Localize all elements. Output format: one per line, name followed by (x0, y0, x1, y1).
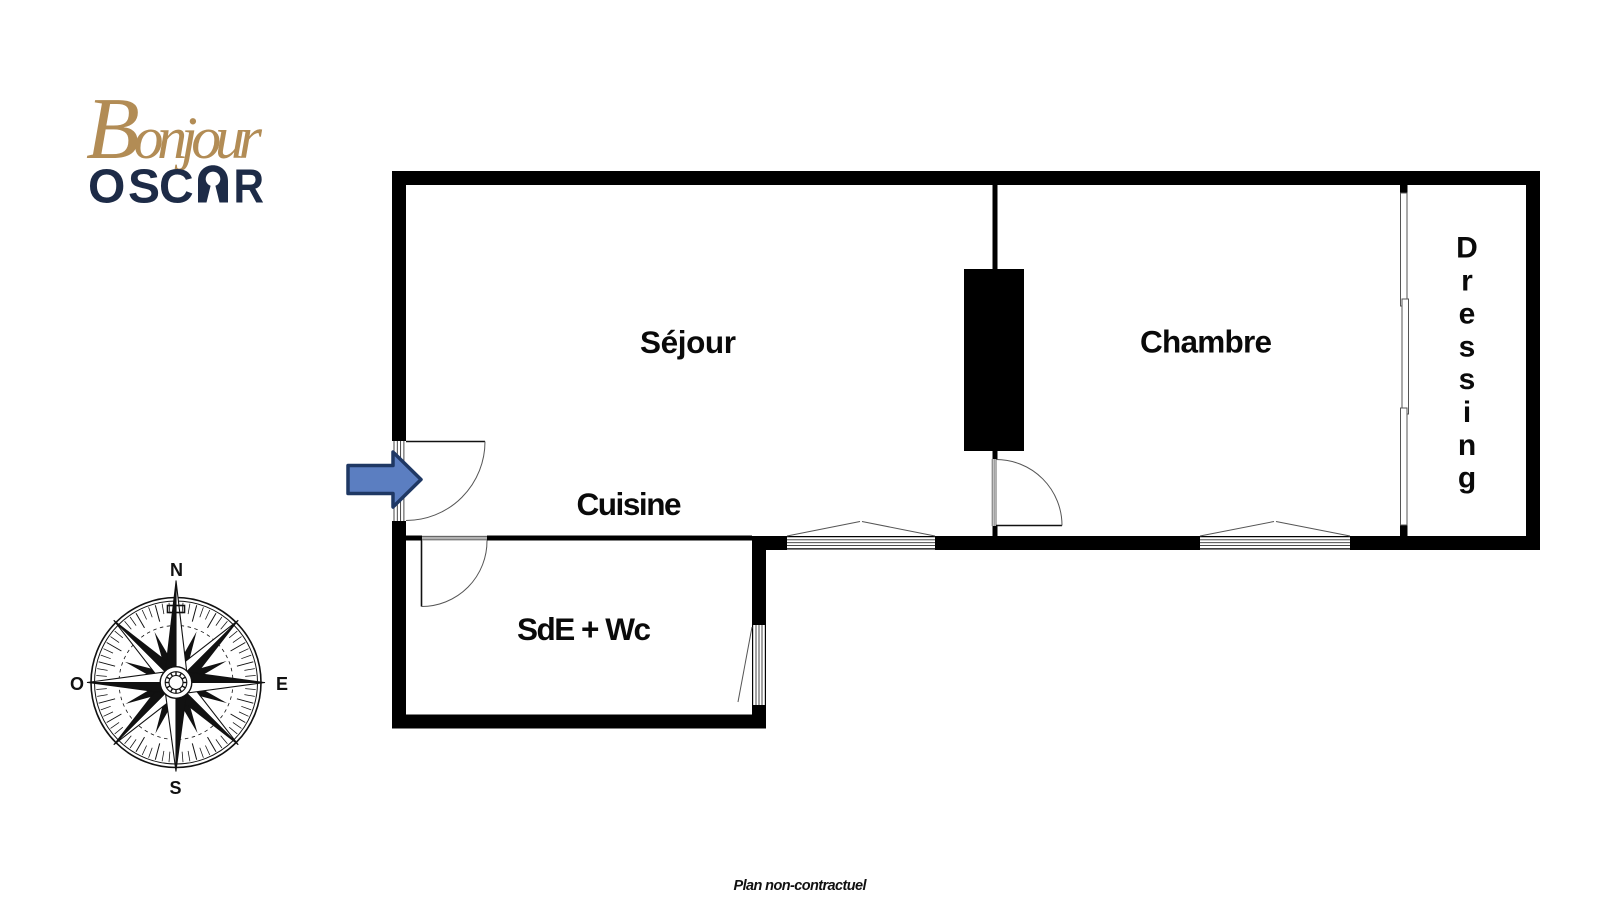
svg-text:O: O (88, 161, 125, 214)
svg-text:s: s (1459, 363, 1476, 396)
svg-text:i: i (1463, 396, 1471, 429)
svg-text:n: n (1458, 429, 1476, 462)
svg-text:r: r (1461, 265, 1473, 298)
svg-text:Cuisine: Cuisine (577, 486, 682, 522)
svg-text:C: C (159, 161, 194, 214)
svg-text:O: O (70, 674, 84, 694)
svg-text:E: E (276, 674, 288, 694)
svg-text:g: g (1458, 462, 1476, 495)
svg-text:s: s (1459, 330, 1476, 363)
svg-text:S: S (128, 161, 160, 214)
svg-text:Plan non-contractuel: Plan non-contractuel (734, 878, 868, 894)
svg-text:SdE + Wc: SdE + Wc (517, 611, 651, 647)
svg-text:S: S (169, 778, 181, 798)
svg-text:e: e (1459, 297, 1476, 330)
svg-text:R: R (234, 159, 265, 213)
svg-text:Séjour: Séjour (640, 324, 736, 360)
svg-text:N: N (170, 560, 183, 580)
svg-text:Chambre: Chambre (1140, 324, 1272, 360)
svg-text:D: D (1456, 232, 1478, 265)
